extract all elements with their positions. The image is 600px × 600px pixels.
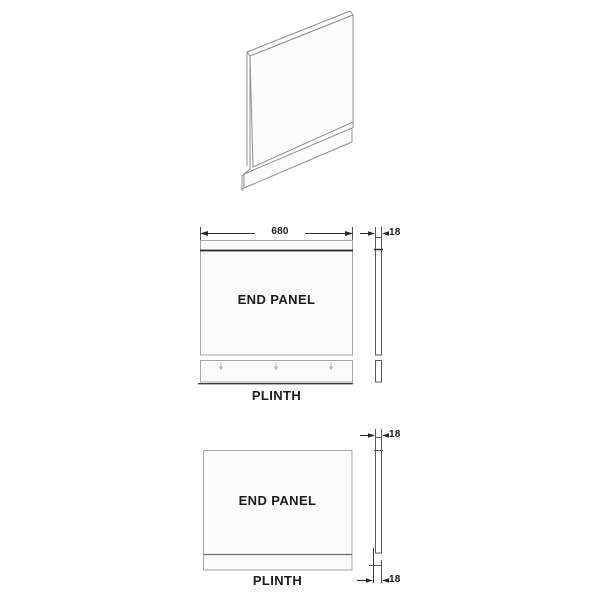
plinth-left-cap — [242, 174, 244, 190]
end-panel-label: END PANEL — [203, 493, 352, 508]
thickness-dimension-bottom — [357, 548, 389, 583]
arrowhead-in-right — [382, 231, 389, 236]
arrowhead-in-left — [368, 433, 375, 438]
product-dimension-diagram: 680 18 END PANEL PLINTH 18 18 END PANEL … — [0, 0, 600, 600]
panel-side-outline — [376, 238, 382, 356]
thickness-dimension — [360, 227, 389, 241]
arrowhead-in-right — [382, 433, 389, 438]
plinth-thickness-dimension-value: 18 — [389, 574, 401, 585]
arrowhead-in-right — [382, 578, 389, 583]
thickness-dimension-value: 18 — [389, 227, 401, 238]
arrowhead-in-left — [368, 231, 375, 236]
plinth-label: PLINTH — [200, 388, 353, 403]
side-view-integrated-plinth — [357, 429, 389, 583]
plinth-side-outline — [376, 361, 382, 383]
arrowhead-right — [345, 231, 353, 236]
arrowhead-in-left — [366, 578, 373, 583]
front-view-integrated-plinth — [204, 451, 353, 571]
perspective-view — [242, 11, 353, 190]
end-panel-label: END PANEL — [200, 292, 353, 307]
plinth-label: PLINTH — [203, 573, 352, 588]
side-view-separate-plinth — [360, 227, 389, 382]
width-dimension-value: 680 — [255, 226, 305, 237]
arrowhead-left — [200, 231, 208, 236]
end-panel-outline — [204, 451, 353, 571]
thickness-dimension-value: 18 — [389, 429, 401, 440]
thickness-dimension-top — [360, 429, 389, 443]
panel-side-outline — [376, 438, 382, 554]
